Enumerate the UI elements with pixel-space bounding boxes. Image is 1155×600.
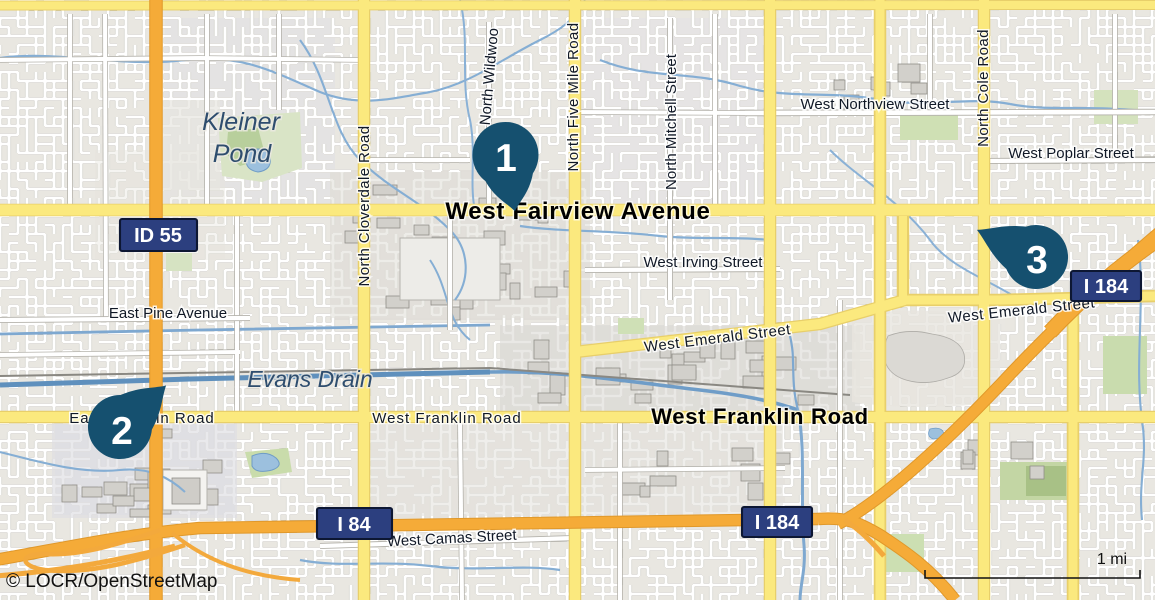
svg-text:West Franklin Road: West Franklin Road	[372, 410, 521, 427]
svg-text:West Poplar Street: West Poplar Street	[1008, 145, 1134, 162]
svg-text:I 184: I 184	[1084, 276, 1129, 298]
svg-text:North Cole Road: North Cole Road	[975, 29, 992, 147]
svg-text:3: 3	[1026, 239, 1048, 282]
svg-text:Kleiner: Kleiner	[202, 108, 281, 136]
svg-text:North Mitchell Street: North Mitchell Street	[663, 53, 680, 190]
svg-text:North Cloverdale Road: North Cloverdale Road	[356, 126, 373, 287]
svg-text:1 mi: 1 mi	[1097, 551, 1127, 568]
svg-text:I 84: I 84	[337, 514, 371, 536]
svg-text:© LOCR/OpenStreetMap: © LOCR/OpenStreetMap	[6, 571, 217, 592]
svg-text:Evans Drain: Evans Drain	[247, 366, 372, 392]
svg-text:I 184: I 184	[755, 512, 800, 534]
svg-text:2: 2	[111, 410, 133, 453]
svg-text:ID 55: ID 55	[134, 225, 182, 247]
svg-text:West Fairview Avenue: West Fairview Avenue	[445, 198, 710, 225]
svg-text:1: 1	[495, 137, 517, 180]
svg-text:West Irving Street: West Irving Street	[644, 254, 764, 271]
svg-text:North Five Mile Road: North Five Mile Road	[565, 23, 582, 172]
svg-text:West Northview Street: West Northview Street	[801, 96, 951, 113]
svg-text:East Pine Avenue: East Pine Avenue	[109, 305, 227, 322]
svg-text:West Franklin Road: West Franklin Road	[651, 404, 869, 429]
svg-text:Pond: Pond	[213, 140, 272, 168]
